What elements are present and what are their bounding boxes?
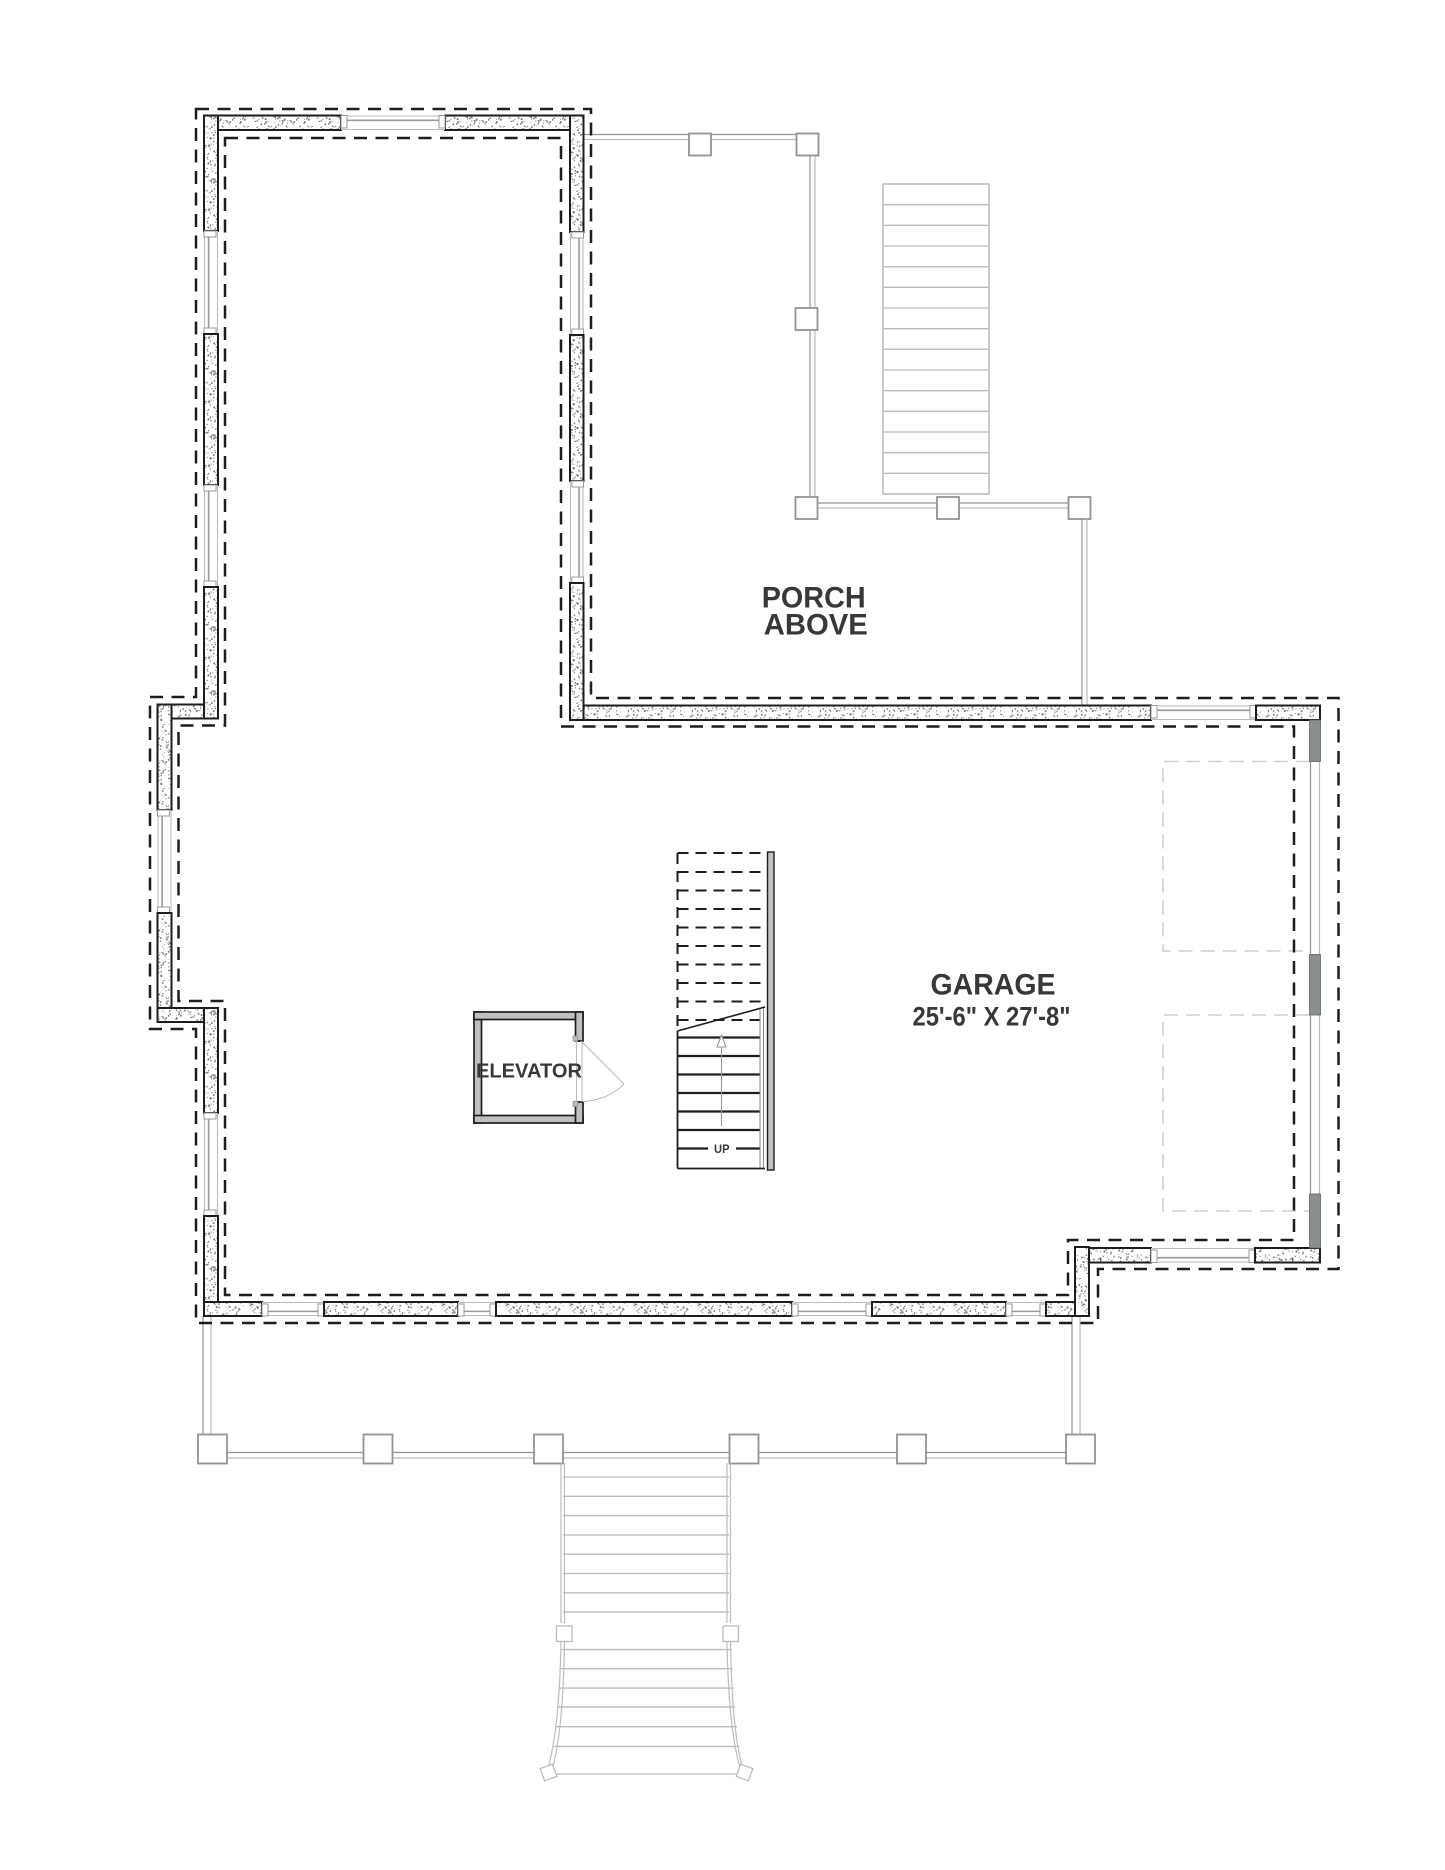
svg-text:UP: UP [714,1144,730,1156]
svg-text:ABOVE: ABOVE [764,609,868,642]
svg-text:GARAGE: GARAGE [931,969,1056,1002]
svg-text:25'-6" X 27'-8": 25'-6" X 27'-8" [913,1002,1071,1032]
svg-text:ELEVATOR: ELEVATOR [476,1061,583,1083]
